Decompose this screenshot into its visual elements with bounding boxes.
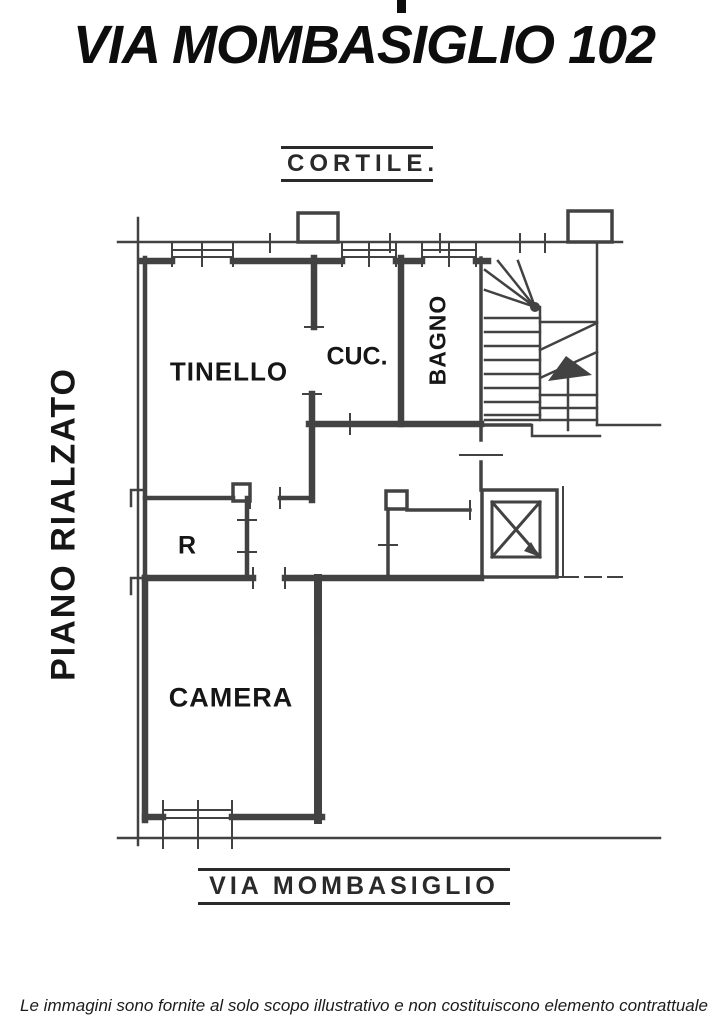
floor-level-label: PIANO RIALZATO bbox=[45, 367, 84, 681]
room-label-ripostiglio: R bbox=[178, 532, 196, 561]
room-label-cucina: CUC. bbox=[326, 343, 387, 372]
corridor-wall bbox=[145, 568, 481, 588]
disclaimer-text: Le immagini sono fornite al solo scopo i… bbox=[0, 996, 728, 1016]
room-label-camera: CAMERA bbox=[169, 683, 294, 714]
room-label-tinello: TINELLO bbox=[170, 357, 288, 388]
courtyard-pillars bbox=[270, 211, 612, 252]
street-label: VIA MOMBASIGLIO bbox=[198, 868, 510, 905]
stair-arrow-head bbox=[548, 356, 592, 381]
floor-plan: CORTILE. VIA MOMBASIGLIO TINELLO CUC. BA… bbox=[0, 0, 728, 1024]
stairwell bbox=[460, 258, 600, 490]
closet-walls bbox=[379, 491, 470, 578]
floor-plan-page: VIA MOMBASIGLIO 102 bbox=[0, 0, 728, 1024]
room-label-bagno: BAGNO bbox=[425, 295, 452, 386]
courtyard-label: CORTILE. bbox=[281, 146, 433, 182]
ripostiglio-walls bbox=[145, 484, 312, 578]
elevator bbox=[482, 490, 557, 577]
tinello-cucina-wall bbox=[303, 258, 323, 500]
